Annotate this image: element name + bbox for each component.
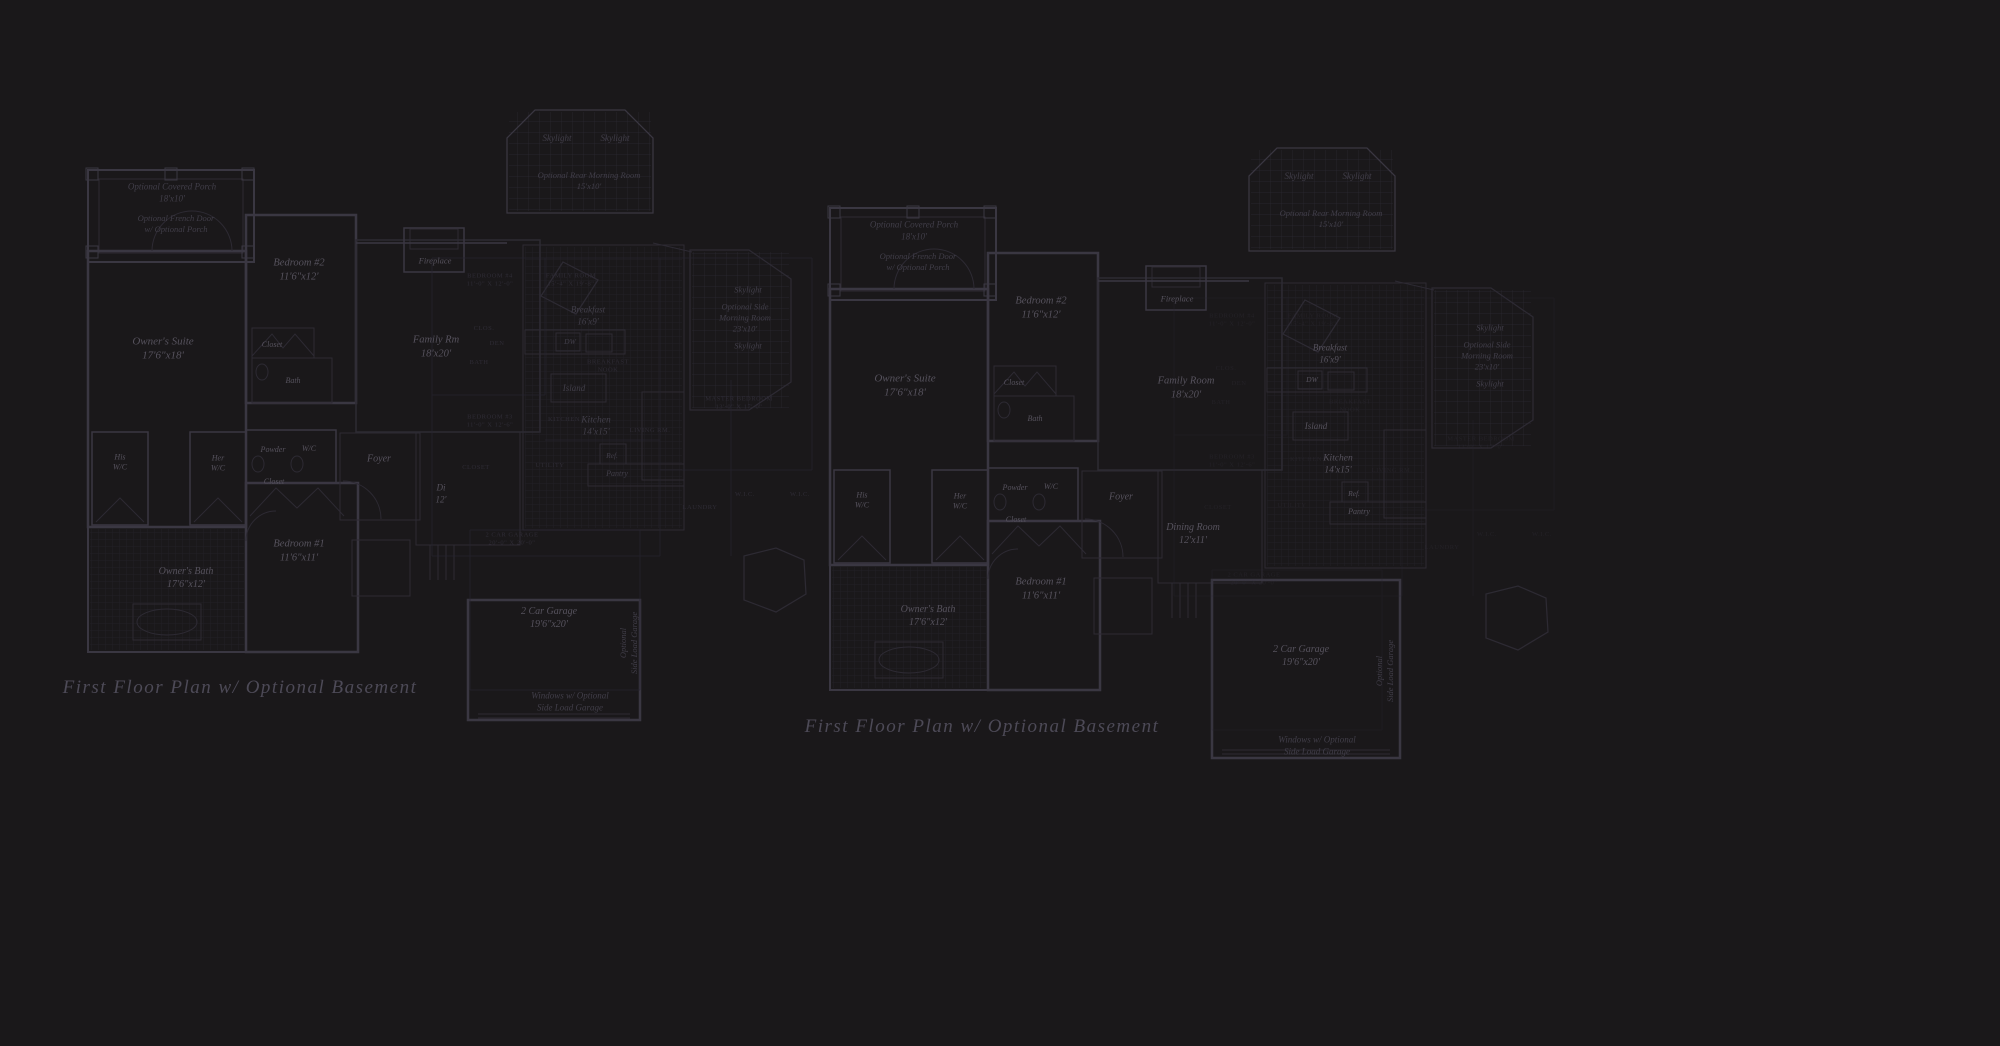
- plan-right-walls: [828, 148, 1548, 758]
- plan-left-walls: [86, 110, 806, 720]
- floorplan-drawing: [0, 0, 2000, 1046]
- floor-plan-canvas: First Floor Plan w/ Optional Basement Fi…: [0, 0, 2000, 1046]
- plan-title-right: First Floor Plan w/ Optional Basement: [805, 716, 1160, 738]
- plan-title-left: First Floor Plan w/ Optional Basement: [63, 677, 418, 699]
